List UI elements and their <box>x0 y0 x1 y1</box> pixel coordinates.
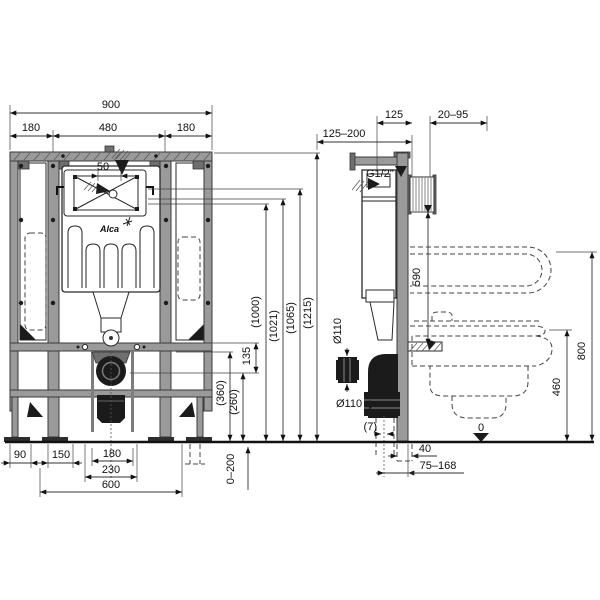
side-view: G1/2" <box>317 109 597 477</box>
dim-floor-zero: 0 <box>478 422 484 434</box>
dim-total-width: 900 <box>102 99 120 111</box>
dim-wall-offset: 125–200 <box>323 128 366 140</box>
flush-rod-hole <box>109 190 117 198</box>
brace-foot-left <box>27 402 43 417</box>
dim-range-75-168: 75–168 <box>420 460 457 472</box>
dim-inlet-height: 590 <box>411 268 423 286</box>
dim-h-800: 800 <box>576 342 588 360</box>
dim-water-inlet: G1/2" <box>366 168 394 180</box>
dim-b-600: 600 <box>102 479 120 491</box>
dim-seg-left: 180 <box>22 122 40 134</box>
cistern-front: Alca <box>57 166 160 332</box>
leg-extension-dashed <box>185 444 205 464</box>
dim-h-460: 460 <box>551 378 563 396</box>
dim-pipe-40: 40 <box>419 443 431 455</box>
lower-assembly <box>4 330 212 464</box>
dim-h-1215: (1215) <box>302 297 314 329</box>
front-view: Alca <box>1 99 320 497</box>
installation-frame-drawing: Alca <box>0 0 600 600</box>
dim-frame-depth: 125 <box>385 109 403 121</box>
dim-flush-offset: 50 <box>97 161 109 173</box>
technical-drawing-page: Alca <box>0 0 600 600</box>
brace-foot-right <box>179 402 195 417</box>
dim-seg-right: 180 <box>177 122 195 134</box>
flush-funnel <box>93 292 129 332</box>
dim-h-1021: (1021) <box>268 310 280 342</box>
dim-h-260: (260) <box>228 389 240 415</box>
cistern-side <box>362 170 396 340</box>
wc-fixing-bracket <box>408 339 442 351</box>
dim-pipe-dia-elbow: Ø110 <box>336 398 362 410</box>
wall-bracket-arm <box>353 157 397 165</box>
dim-h-135: 135 <box>241 347 253 365</box>
dim-offset-7: (7) <box>364 421 377 433</box>
access-window <box>57 170 153 216</box>
floor-level-marker-icon <box>473 433 489 442</box>
frame-left-column <box>10 161 18 411</box>
frame-top-bar <box>10 152 212 161</box>
dim-leg-adjust: 0–200 <box>225 454 237 485</box>
brand-logo: Alca <box>99 224 119 234</box>
frame-right-column <box>204 161 212 411</box>
toilet-outline <box>410 247 552 418</box>
dim-pipe-dia-outlet: Ø110 <box>332 318 344 344</box>
dim-seg-center: 480 <box>99 122 117 134</box>
dim-h-360: (360) <box>215 380 227 406</box>
dim-b-150: 150 <box>52 449 70 461</box>
flush-plate-block <box>408 175 436 214</box>
dim-b-230: 230 <box>102 464 120 476</box>
dim-b-180: 180 <box>103 448 121 460</box>
dim-h-1000: (1000) <box>250 296 262 328</box>
dim-b-90: 90 <box>14 449 26 461</box>
dim-h-1065: (1065) <box>285 302 297 334</box>
dim-finish-range: 20–95 <box>438 109 469 121</box>
waste-outlet-sleeve <box>338 357 357 383</box>
